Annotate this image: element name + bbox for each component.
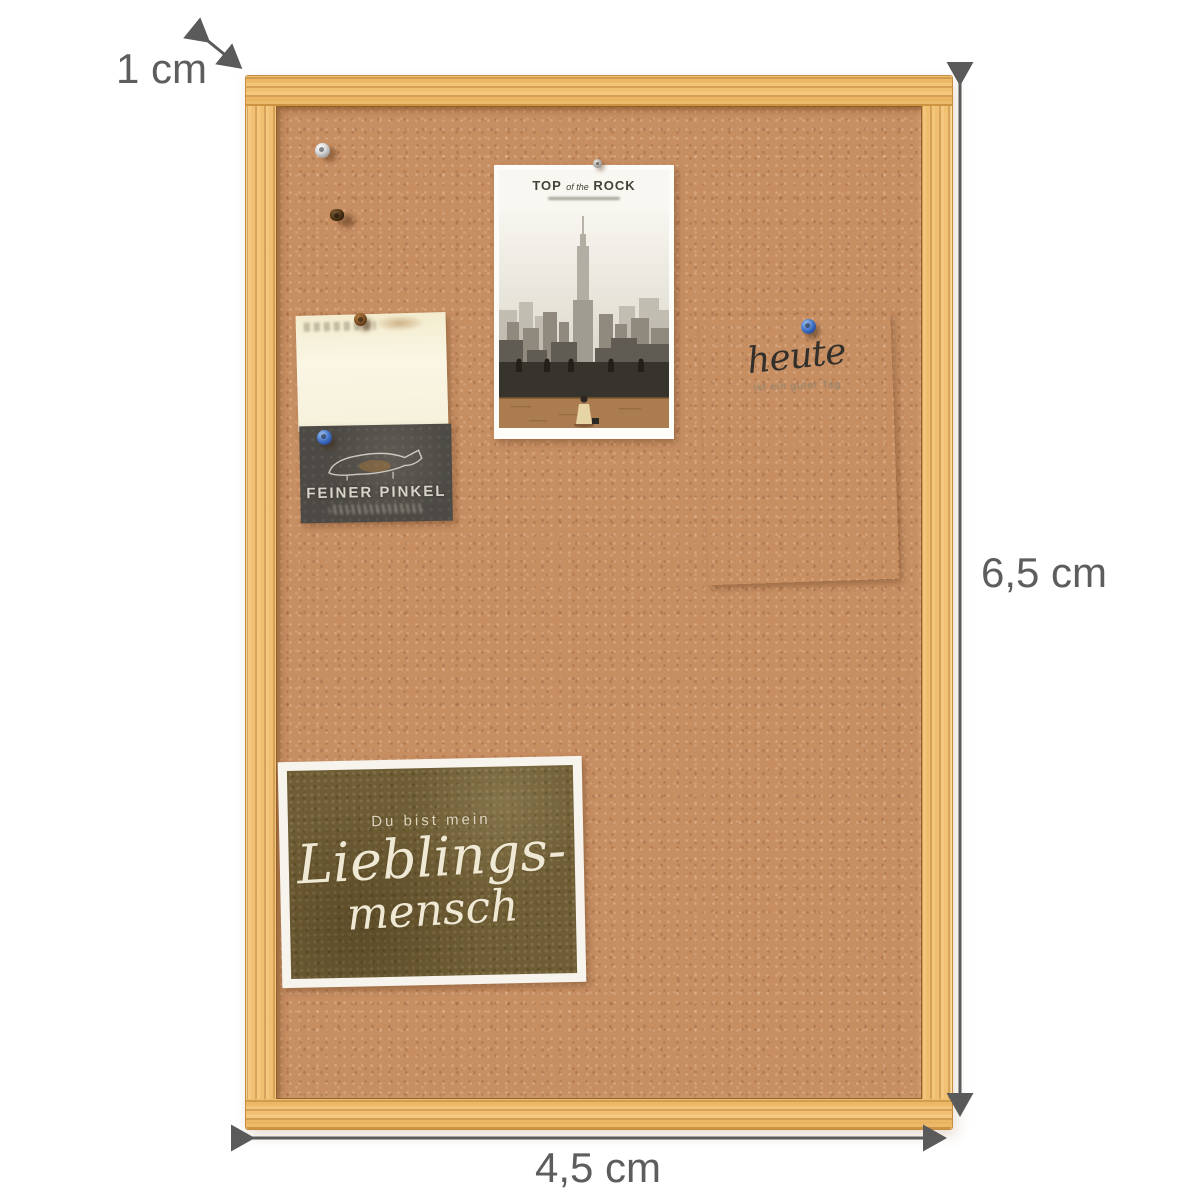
feiner-pinkel-script-blurred <box>329 503 425 515</box>
wood-frame-bottom <box>246 1099 952 1129</box>
postcard-title-of-the: of the <box>566 182 589 192</box>
push-pin-blue-notepad-icon <box>801 319 816 334</box>
postcard-title-rock: ROCK <box>593 178 635 193</box>
note-stain <box>374 315 426 332</box>
cork-surface: TOP of the ROCK <box>276 106 922 1099</box>
card-lieblingsmensch: Du bist mein Lieblings- mensch <box>278 756 587 988</box>
push-pin-silver-icon <box>315 143 330 158</box>
cork-board: TOP of the ROCK <box>245 75 953 1130</box>
product-image: TOP of the ROCK <box>0 0 1200 1200</box>
push-pin-blue-feiner-icon <box>317 430 332 445</box>
push-pin-dark-icon <box>330 209 344 221</box>
frame-width-label: 1 cm <box>116 47 207 91</box>
feiner-pinkel-title: FEINER PINKEL <box>306 483 446 502</box>
board-width-label: 4,5 cm <box>245 1146 951 1190</box>
lieblings-line3: mensch <box>346 884 520 938</box>
push-pin-postcard-icon <box>593 159 602 168</box>
note-cream <box>296 312 449 432</box>
frame-width-arrow <box>208 41 240 67</box>
lieblings-line2: Lieblings- <box>296 823 568 892</box>
postcard-title-top: TOP <box>532 178 561 193</box>
postcard-top-of-the-rock: TOP of the ROCK <box>494 165 674 439</box>
postcard-subtitle-blurred <box>548 197 620 200</box>
notepad-heute: heute ist ein guter Tag <box>699 311 899 586</box>
dachshund-drawing <box>316 443 435 483</box>
postcard-title: TOP of the ROCK <box>499 178 669 193</box>
board-height-label: 6,5 cm <box>981 551 1107 595</box>
wood-frame-top <box>246 76 952 106</box>
push-pin-brown-icon <box>354 313 367 326</box>
postcard-header: TOP of the ROCK <box>499 170 669 210</box>
postcard-skyline-photo <box>499 210 669 428</box>
lieblingsmensch-face: Du bist mein Lieblings- mensch <box>287 765 577 979</box>
